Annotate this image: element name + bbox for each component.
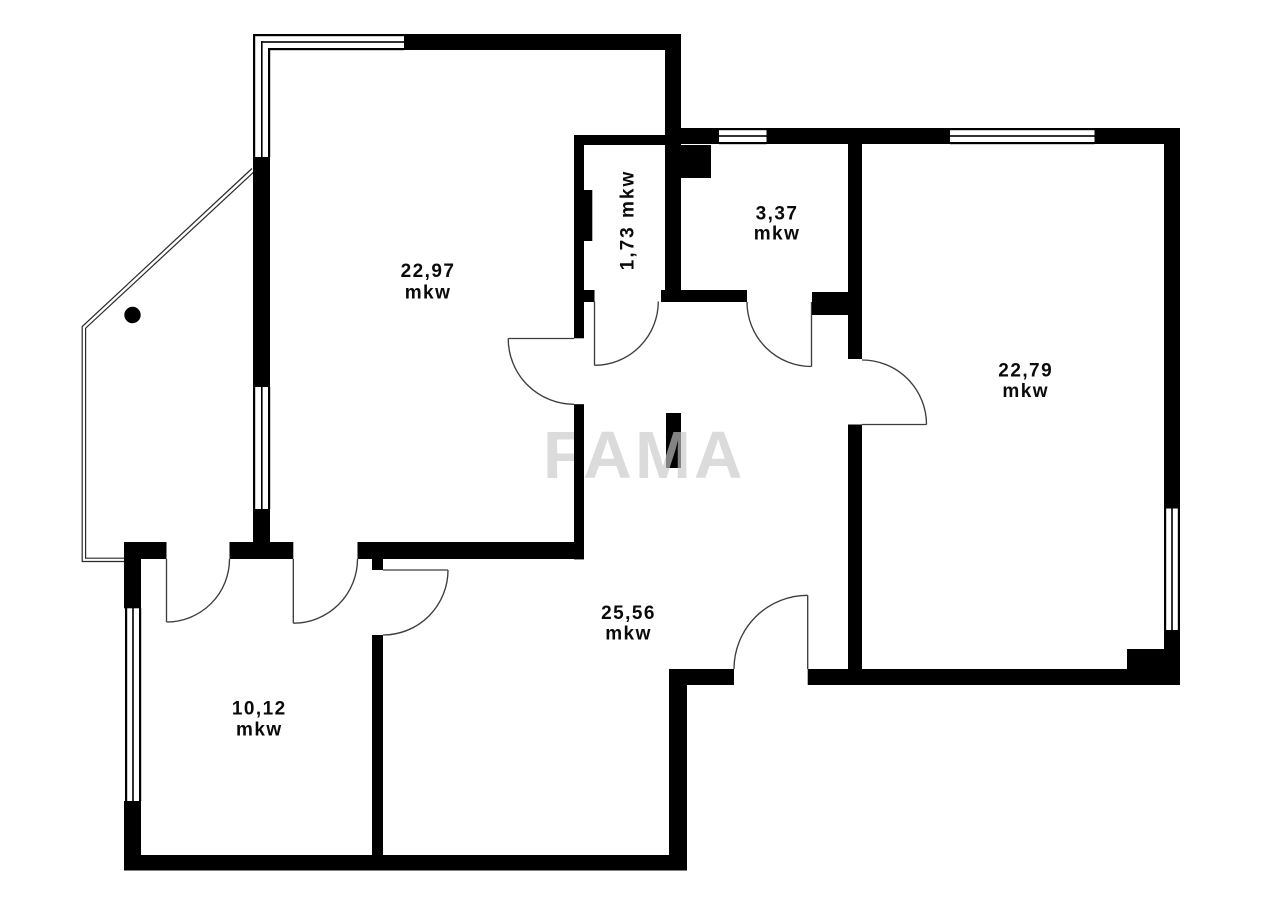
- svg-text:mkw: mkw: [1002, 381, 1049, 402]
- svg-text:22,97: 22,97: [401, 261, 456, 282]
- svg-text:1,73 mkw: 1,73 mkw: [618, 170, 639, 271]
- svg-text:25,56: 25,56: [601, 603, 656, 624]
- svg-text:22,79: 22,79: [998, 361, 1053, 382]
- svg-text:3,37: 3,37: [756, 203, 799, 224]
- svg-text:10,12: 10,12: [232, 699, 287, 720]
- svg-text:mkw: mkw: [405, 282, 452, 303]
- svg-text:mkw: mkw: [605, 624, 652, 645]
- svg-text:mkw: mkw: [754, 223, 801, 244]
- svg-text:mkw: mkw: [236, 720, 283, 741]
- svg-text:FAMA: FAMA: [543, 418, 746, 493]
